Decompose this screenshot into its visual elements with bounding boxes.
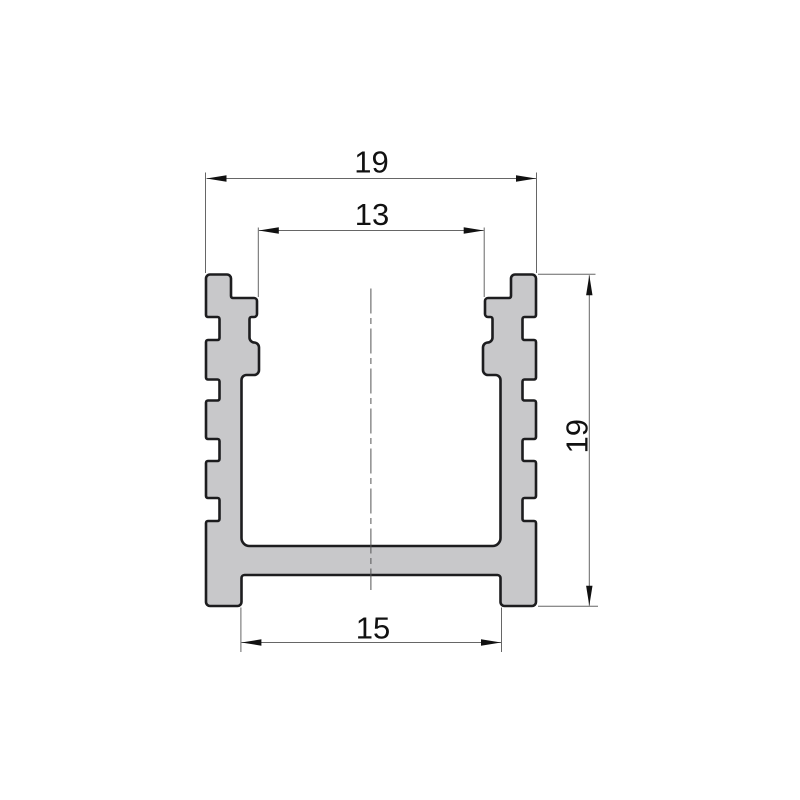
svg-text:19: 19: [354, 145, 388, 180]
svg-text:19: 19: [560, 419, 595, 453]
svg-text:15: 15: [356, 611, 390, 646]
svg-text:13: 13: [355, 197, 389, 232]
